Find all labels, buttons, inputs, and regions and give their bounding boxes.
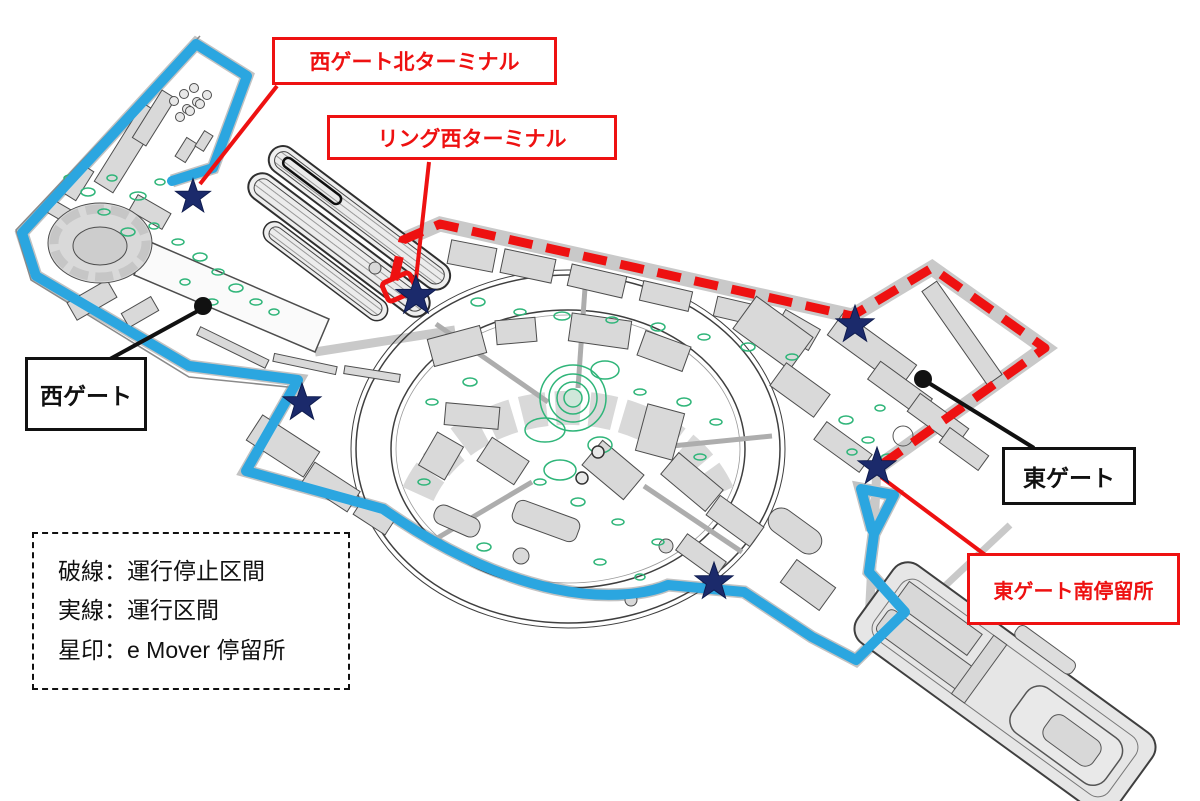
callout-label: 西ゲート北ターミナル: [310, 46, 520, 76]
callout-east-gate-south-stop: 東ゲート南停留所: [967, 553, 1180, 625]
callout-west-gate: 西ゲート: [25, 357, 147, 431]
callout-west-gate-north-terminal: 西ゲート北ターミナル: [272, 37, 557, 85]
dome-cluster: [170, 84, 212, 122]
buildings: [48, 84, 1171, 801]
legend-box: 破線：運行停止区間 実線：運行区間 星印：e Mover 停留所: [32, 532, 350, 690]
callout-ring-west-terminal: リング西ターミナル: [327, 115, 617, 160]
west-gate-dot: [194, 297, 212, 315]
callout-label: リング西ターミナル: [378, 123, 567, 153]
callout-label: 西ゲート: [40, 377, 132, 411]
legend-line-star: 星印：e Mover 停留所: [58, 638, 348, 663]
emover-route-map: 西ゲート北ターミナル リング西ターミナル 西ゲート 東ゲート 東ゲート南停留所 …: [0, 0, 1200, 801]
callout-east-gate: 東ゲート: [1002, 447, 1136, 505]
grand-ring: [351, 270, 785, 628]
east-gate-dot: [914, 370, 932, 388]
callout-label: 東ゲート南停留所: [994, 575, 1154, 604]
legend-line-dashed: 破線：運行停止区間: [58, 559, 348, 584]
callout-label: 東ゲート: [1023, 459, 1115, 493]
legend-line-solid: 実線：運行区間: [58, 598, 348, 623]
